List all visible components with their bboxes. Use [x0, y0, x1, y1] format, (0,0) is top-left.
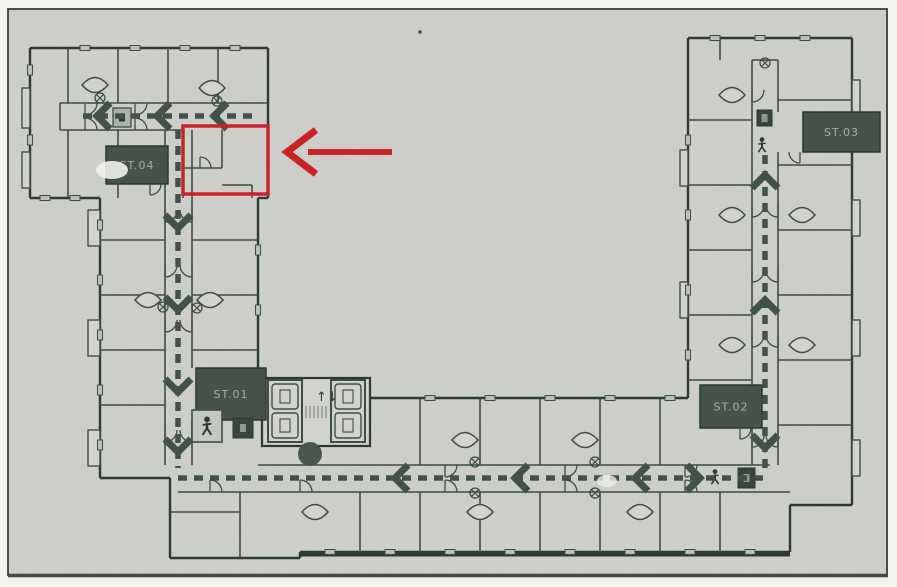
balcony [852, 200, 860, 236]
window [710, 36, 720, 41]
window [325, 550, 335, 555]
balcony [852, 440, 860, 476]
window [98, 330, 103, 340]
window [230, 46, 240, 51]
window [545, 396, 555, 401]
floor-plan: ↑↓ ST.04ST.01ST.02ST.03 [0, 0, 897, 587]
window [625, 550, 635, 555]
elevator-shaft [268, 380, 302, 442]
floor-plan-page: ↑↓ ST.04ST.01ST.02ST.03 [0, 0, 897, 587]
fire-equipment-icon [233, 418, 253, 438]
window [425, 396, 435, 401]
window [686, 350, 691, 360]
window [686, 135, 691, 145]
window [565, 550, 575, 555]
person-icon [192, 410, 222, 442]
window [130, 46, 140, 51]
fire-equipment-icon [757, 110, 772, 126]
window [665, 396, 675, 401]
window [98, 385, 103, 395]
stair-label: ST.01 [214, 388, 249, 401]
stair-label: ST.03 [824, 126, 859, 139]
window [755, 36, 765, 41]
window [180, 46, 190, 51]
scan-white-smudge [96, 161, 128, 179]
balcony [22, 152, 30, 188]
window [98, 275, 103, 285]
scan-grain [8, 9, 888, 576]
balcony [852, 80, 860, 116]
window [385, 550, 395, 555]
elevator-arrows-icon: ↑↓ [316, 390, 338, 405]
window [505, 550, 515, 555]
stair-st03: ST.03 [803, 112, 880, 152]
window [685, 550, 695, 555]
stair-st02: ST.02 [700, 385, 762, 428]
window [98, 220, 103, 230]
window [686, 210, 691, 220]
balcony [852, 320, 860, 356]
window [605, 396, 615, 401]
window [28, 65, 33, 75]
stair-label: ST.02 [714, 401, 749, 414]
window [256, 245, 261, 255]
window [256, 305, 261, 315]
window [80, 46, 90, 51]
balcony [680, 150, 688, 186]
window [485, 396, 495, 401]
window [686, 285, 691, 295]
window [745, 550, 755, 555]
column-symbol [298, 442, 322, 466]
window [800, 36, 810, 41]
scan-white-smudge [597, 475, 617, 487]
window [445, 550, 455, 555]
balcony [22, 88, 30, 128]
scan-speck [418, 30, 422, 34]
window [28, 135, 33, 145]
window [40, 196, 50, 201]
scanned-paper [0, 0, 897, 587]
window [98, 440, 103, 450]
window [70, 196, 80, 201]
